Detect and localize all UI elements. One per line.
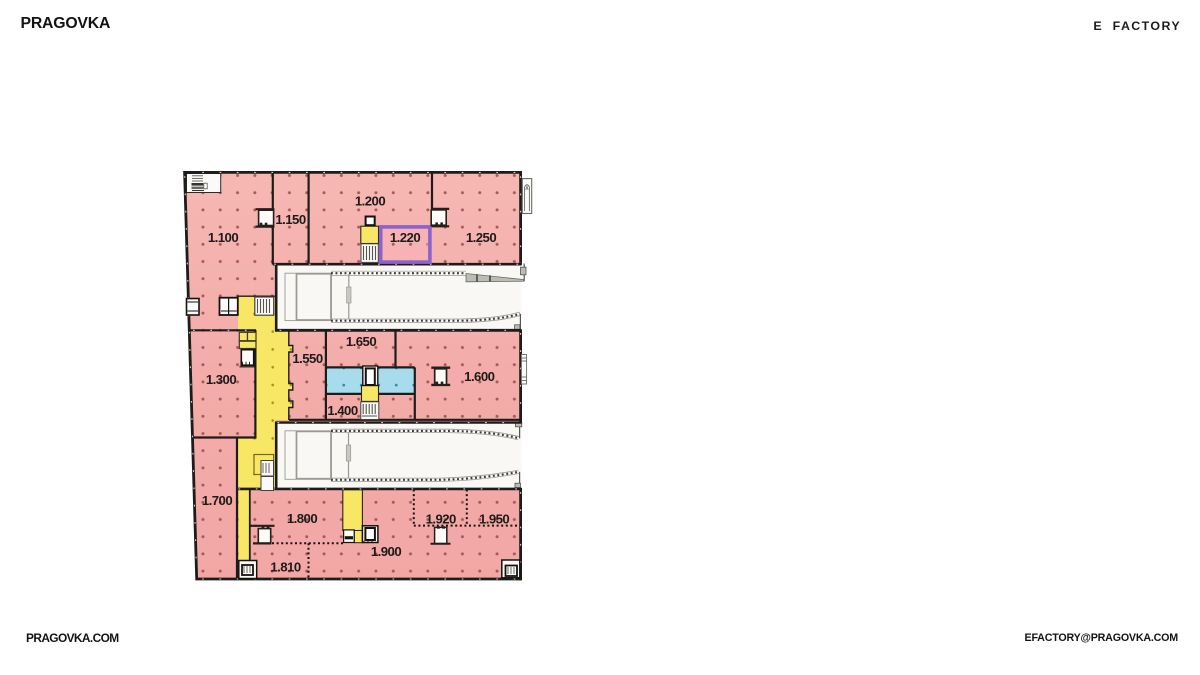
svg-text:1.100: 1.100 bbox=[208, 230, 238, 245]
svg-text:1.600: 1.600 bbox=[464, 369, 494, 384]
svg-text:1.920: 1.920 bbox=[426, 511, 456, 526]
svg-text:1.300: 1.300 bbox=[206, 372, 236, 387]
svg-text:1.200: 1.200 bbox=[355, 193, 385, 208]
svg-text:1.950: 1.950 bbox=[479, 511, 509, 526]
svg-text:1.700: 1.700 bbox=[202, 493, 232, 508]
svg-text:1.150: 1.150 bbox=[275, 212, 305, 227]
svg-text:1.900: 1.900 bbox=[371, 544, 401, 559]
svg-text:1.400: 1.400 bbox=[327, 403, 357, 418]
svg-text:1.550: 1.550 bbox=[292, 351, 322, 366]
svg-text:1.250: 1.250 bbox=[466, 230, 496, 245]
svg-text:1.810: 1.810 bbox=[270, 560, 300, 575]
svg-text:1.650: 1.650 bbox=[346, 334, 376, 349]
svg-text:1.220: 1.220 bbox=[390, 230, 420, 245]
svg-text:1.800: 1.800 bbox=[287, 511, 317, 526]
